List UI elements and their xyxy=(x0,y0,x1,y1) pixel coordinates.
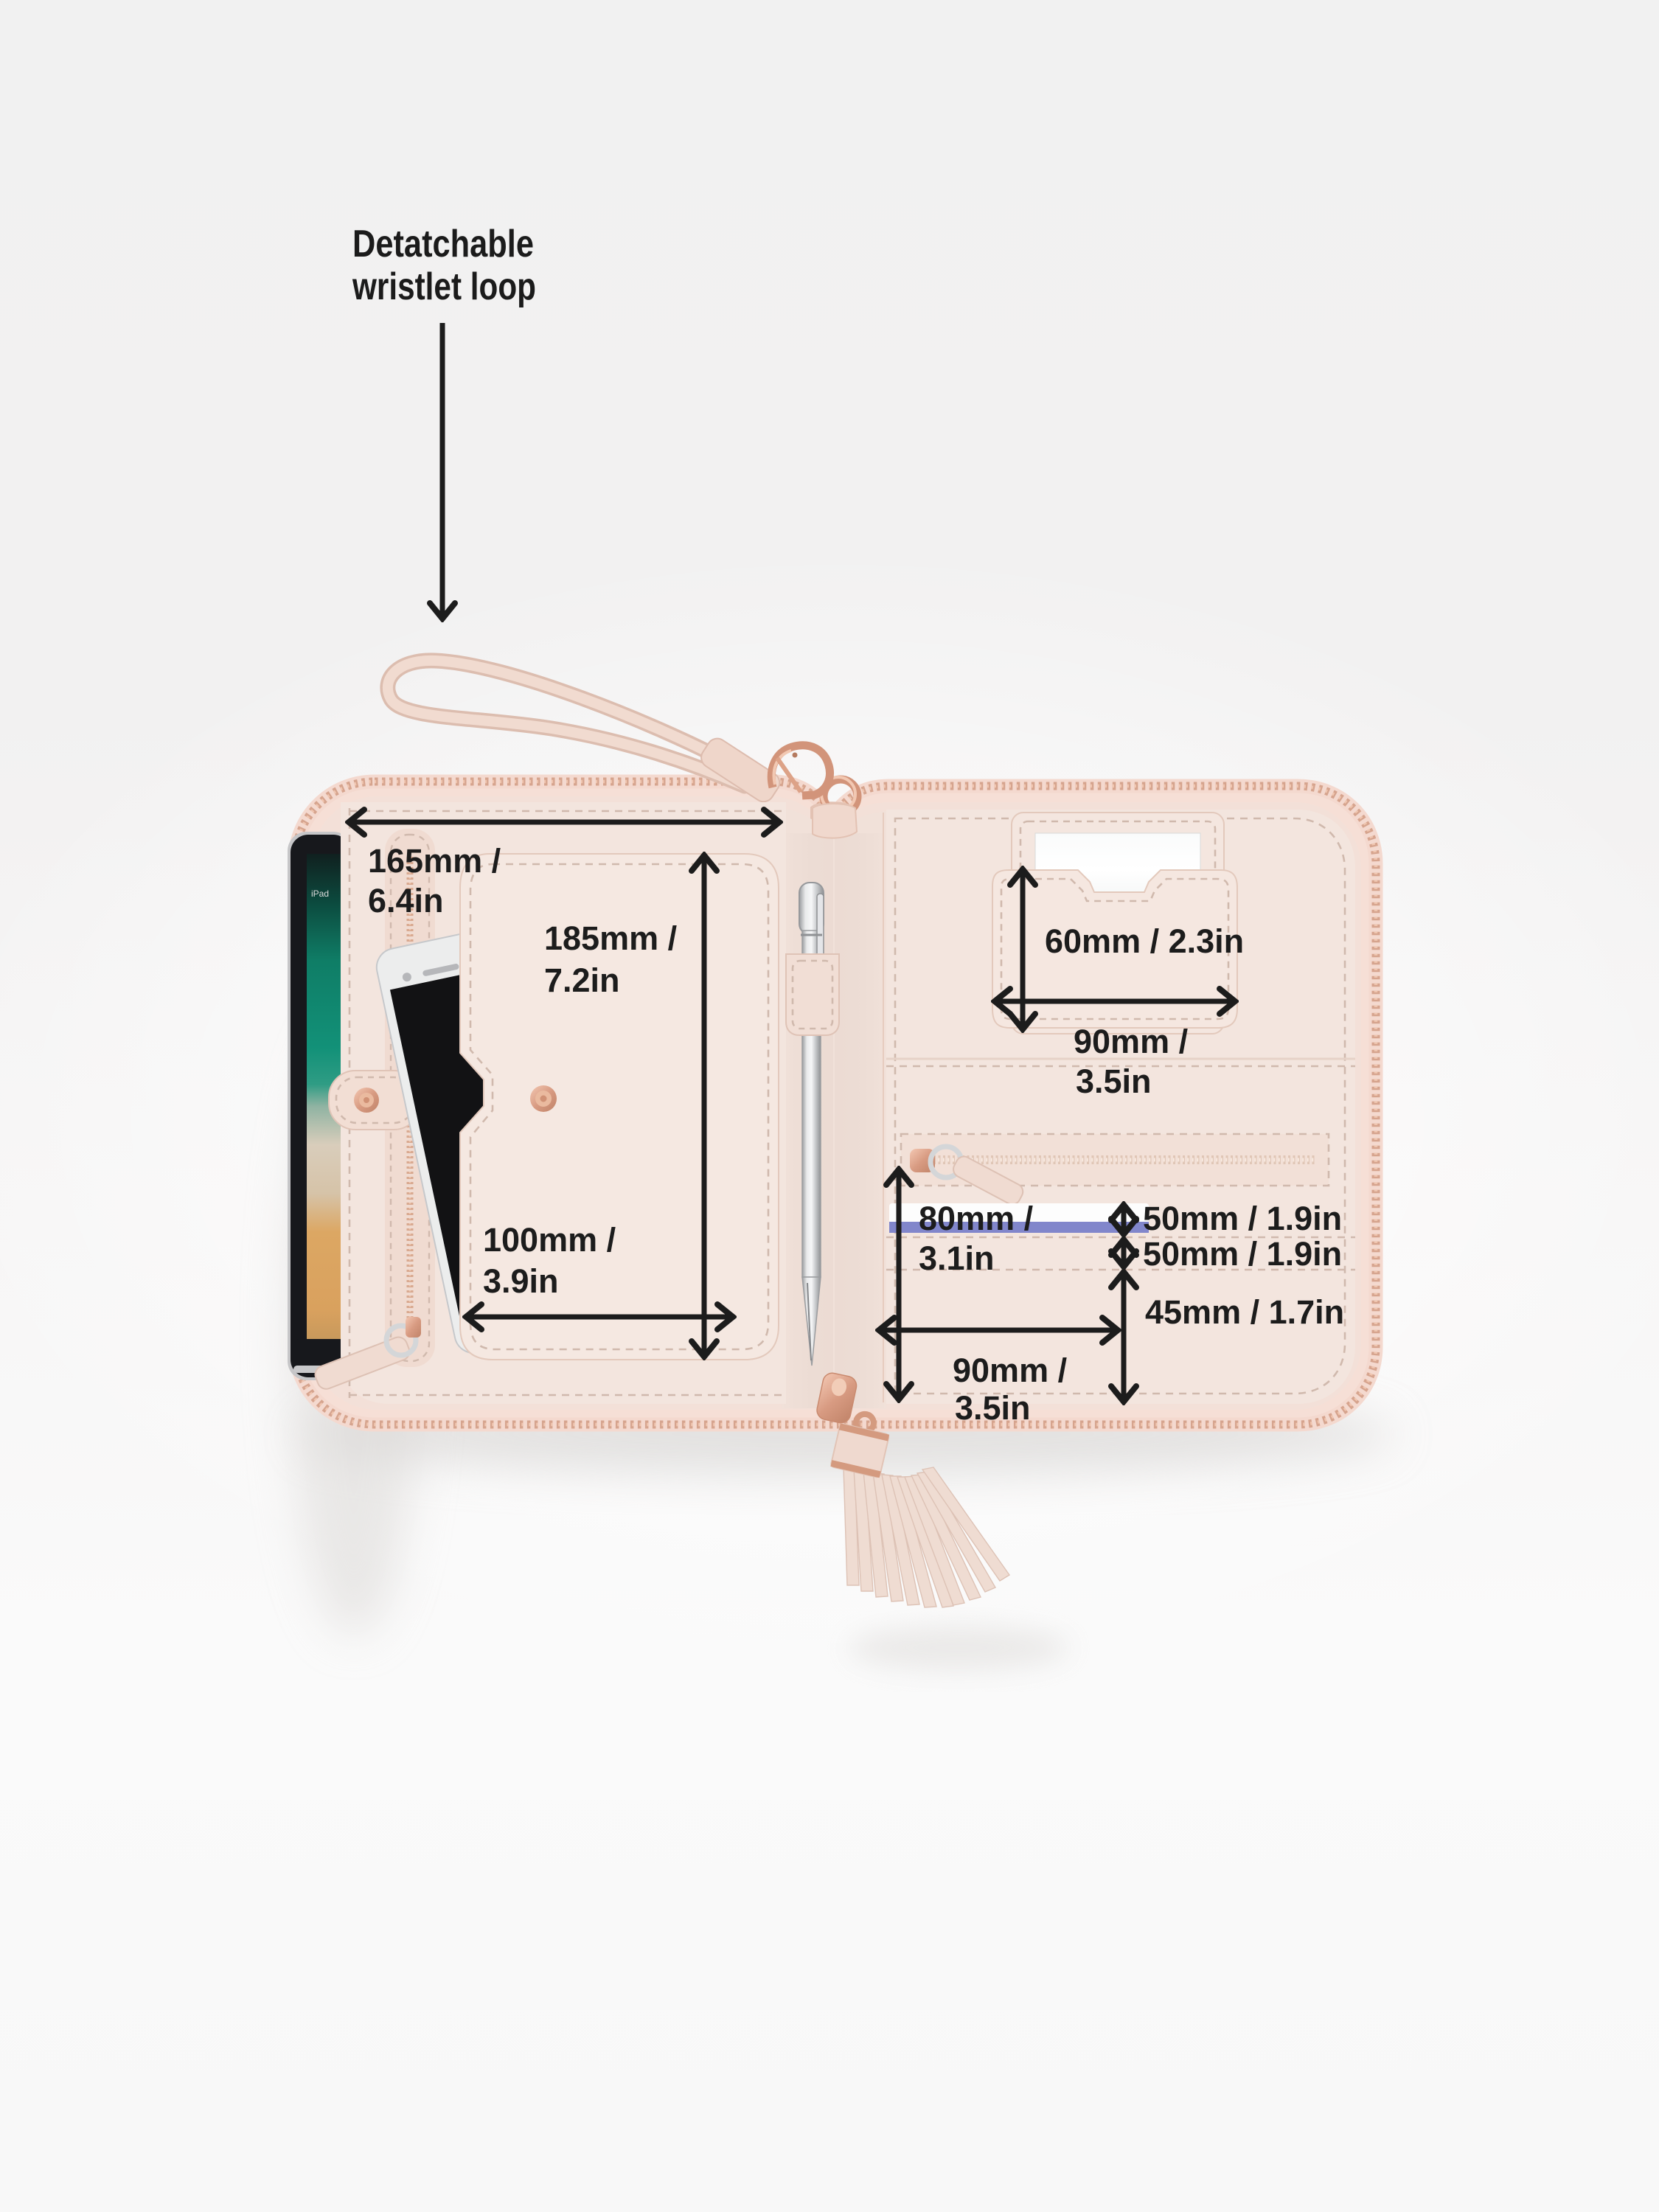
svg-text:7.2in: 7.2in xyxy=(544,961,620,999)
svg-text:80mm /: 80mm / xyxy=(919,1200,1034,1237)
svg-text:60mm / 2.3in: 60mm / 2.3in xyxy=(1045,922,1244,960)
svg-text:Detatchable: Detatchable xyxy=(352,223,534,265)
svg-text:45mm / 1.7in: 45mm / 1.7in xyxy=(1145,1293,1344,1331)
svg-text:50mm / 1.9in: 50mm / 1.9in xyxy=(1143,1200,1342,1237)
svg-text:iPad: iPad xyxy=(311,888,329,899)
svg-text:6.4in: 6.4in xyxy=(368,882,444,919)
svg-text:3.1in: 3.1in xyxy=(919,1239,995,1277)
svg-text:50mm / 1.9in: 50mm / 1.9in xyxy=(1143,1235,1342,1273)
svg-text:3.5in: 3.5in xyxy=(955,1389,1031,1427)
svg-text:100mm /: 100mm / xyxy=(483,1221,616,1259)
svg-text:wristlet loop: wristlet loop xyxy=(352,265,536,308)
svg-text:90mm /: 90mm / xyxy=(1074,1023,1189,1060)
svg-text:165mm /: 165mm / xyxy=(368,842,501,880)
svg-text:3.5in: 3.5in xyxy=(1076,1062,1152,1100)
svg-text:3.9in: 3.9in xyxy=(483,1262,559,1300)
svg-text:90mm /: 90mm / xyxy=(953,1352,1068,1389)
svg-text:185mm /: 185mm / xyxy=(544,919,678,957)
